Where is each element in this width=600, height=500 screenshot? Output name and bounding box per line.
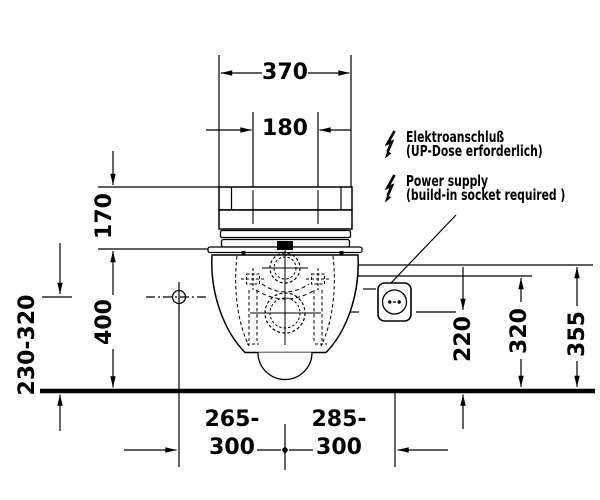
dim-offset-right-label: 285- 300 [311, 406, 366, 462]
toilet-seat-unit [219, 187, 352, 247]
dim-offset-left-label: 265- 300 [204, 406, 259, 462]
electrical-note-english: Power supply (build-in socket required ) [406, 174, 565, 202]
electrical-note-german: Elektroanschluß (UP-Dose erforderlich) [406, 130, 543, 158]
dim-height-355-label: 355 [567, 311, 589, 357]
lightning-bolt-icon [385, 131, 395, 159]
technical-drawing-canvas: 370 180 170 400 230-320 220 320 355 265-… [0, 0, 600, 500]
socket-leader-line [390, 215, 456, 284]
dim-rim-height-label: 400 [94, 299, 116, 345]
dim-width-overall-label: 370 [262, 62, 308, 84]
lightning-bolt-icon [385, 175, 395, 203]
center-mark-dot [282, 447, 288, 453]
dim-seat-height-label: 170 [94, 193, 116, 239]
dim-height-320-label: 320 [509, 308, 531, 354]
dim-width-fixing-label: 180 [262, 118, 308, 140]
dim-height-220-label: 220 [453, 316, 475, 362]
schuko-socket-icon [378, 283, 411, 321]
dim-fixing-range-label: 230-320 [17, 295, 39, 396]
